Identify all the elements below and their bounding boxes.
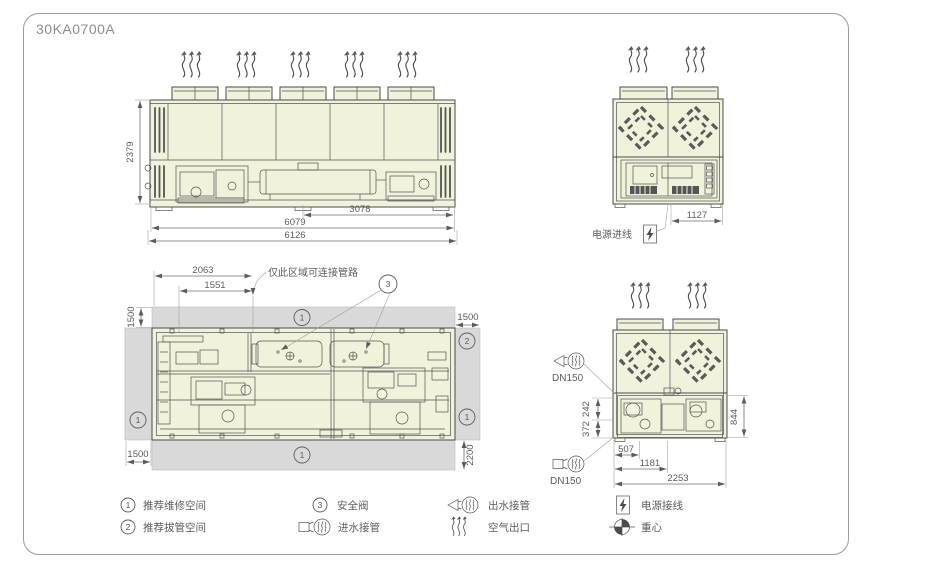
safety-valve [286,352,294,360]
legend-item-cg: 重心 [609,518,662,536]
drawing-canvas: 30KA0700A [0,0,930,586]
dim-6126: 6126 [284,230,305,241]
dim-1500-top-left: 1500 [126,306,137,327]
legend-label: 推荐拔管空间 [143,521,206,534]
rear-end-view: 1127 电源进线 [592,46,723,243]
rear-view-dimensions: 1127 [671,205,723,225]
water-outlet-icon [554,353,584,369]
water-inlet-icon [299,519,330,535]
svg-text:1: 1 [136,415,141,425]
dn150-top-label: DN150 [552,373,584,384]
dim-372: 372 [581,421,592,437]
legend-item-2: 2 推荐拔管空间 [121,520,206,534]
dim-1127: 1127 [687,210,707,221]
legend-label: 进水接管 [338,521,380,534]
legend-item-1: 1 推荐维修空间 [121,498,206,512]
legend-label: 电源接线 [641,499,683,512]
svg-text:1: 1 [300,313,305,323]
dim-3078: 3078 [349,204,370,215]
water-inlet-callout: DN150 [550,437,614,487]
water-outlet-callout: DN150 [552,353,614,393]
center-of-gravity-icon [609,518,635,536]
dim-844: 844 [729,409,740,425]
unit-footprint [152,328,455,440]
svg-text:3: 3 [386,279,391,289]
dim-2200: 2200 [465,444,476,465]
note-text: 仅此区域可连接管路 [268,266,358,279]
water-inlet-icon [553,456,584,472]
svg-text:1: 1 [300,450,305,460]
legend-label: 出水接管 [488,499,530,512]
legend-label: 推荐维修空间 [143,499,206,512]
dim-6079: 6079 [284,217,305,228]
legend-item-water-outlet: 出水接管 [448,497,530,513]
dim-1500-top-right: 1500 [457,312,478,323]
legend: 1 推荐维修空间 2 推荐拔管空间 3 安全阀 进水接管 出水接管 空气出口 [121,496,683,536]
svg-text:2: 2 [126,522,131,532]
power-icon [644,225,657,243]
power-inlet-callout: 电源进线 [592,205,668,243]
air-outlet-icon [628,46,706,72]
plan-view: 1 1 1 1 2 3 仅此区域可连接管路 2063 [125,265,480,470]
svg-text:3: 3 [318,500,323,510]
dim-242: 242 [581,401,592,417]
dim-2379: 2379 [125,141,136,162]
side-view: 2379 3078 6079 6126 [125,51,457,245]
front-end-view: DN150 DN150 242 372 [550,282,748,488]
svg-text:1: 1 [465,412,470,422]
technical-drawing: 2379 3078 6079 6126 [0,0,930,586]
legend-item-water-inlet: 进水接管 [299,519,380,535]
dim-2063: 2063 [192,265,213,276]
svg-text:1: 1 [126,500,131,510]
svg-text:2: 2 [465,336,470,346]
dim-507: 507 [618,444,634,455]
legend-label: 重心 [641,521,662,534]
legend-label: 空气出口 [488,521,530,534]
air-outlet-icon [630,282,708,308]
dim-2253: 2253 [667,473,688,484]
legend-item-power: 电源接线 [617,496,684,514]
legend-item-3: 3 安全阀 [313,498,369,512]
power-icon [617,496,630,514]
safety-valve [349,352,357,360]
dim-1181: 1181 [640,458,660,469]
unit-body [150,100,455,207]
air-outlet-icon [451,516,466,536]
dim-1500-bottom-left: 1500 [127,449,148,460]
water-outlet-icon [448,497,478,513]
air-outlet-icon [181,51,418,77]
fan-cowls [172,87,434,100]
legend-label: 安全阀 [337,499,369,512]
legend-item-air-outlet: 空气出口 [451,516,530,536]
power-inlet-label: 电源进线 [592,228,632,241]
dim-1551: 1551 [204,280,225,291]
dn150-bottom-label: DN150 [550,476,582,487]
